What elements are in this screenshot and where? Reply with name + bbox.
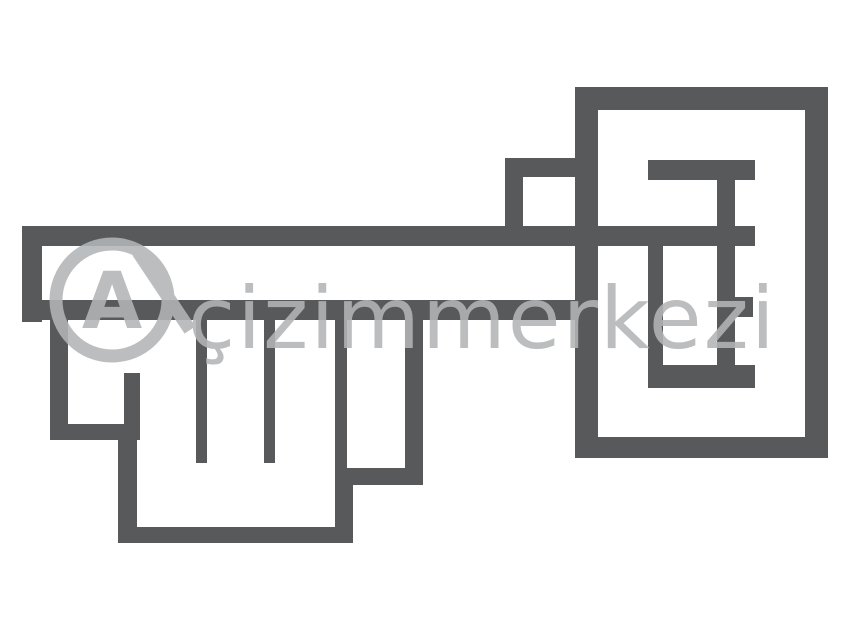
bit-step1-drop	[118, 424, 137, 543]
watermark: A çizimmerkezi	[56, 244, 777, 369]
ward-left-wall	[505, 158, 523, 246]
comb-top-bar	[648, 160, 755, 180]
key-shaped-floorplan: A çizimmerkezi	[0, 0, 850, 630]
bow-right-wall	[805, 87, 828, 458]
drawing-canvas: A çizimmerkezi	[0, 0, 850, 630]
bit-bottom-floor	[118, 527, 353, 543]
bow-bottom-wall	[575, 437, 828, 458]
watermark-text: çizimmerkezi	[188, 269, 777, 369]
bow-top-wall	[575, 87, 828, 110]
watermark-logo-letter: A	[82, 257, 142, 347]
shaft-left-cap	[22, 226, 42, 322]
